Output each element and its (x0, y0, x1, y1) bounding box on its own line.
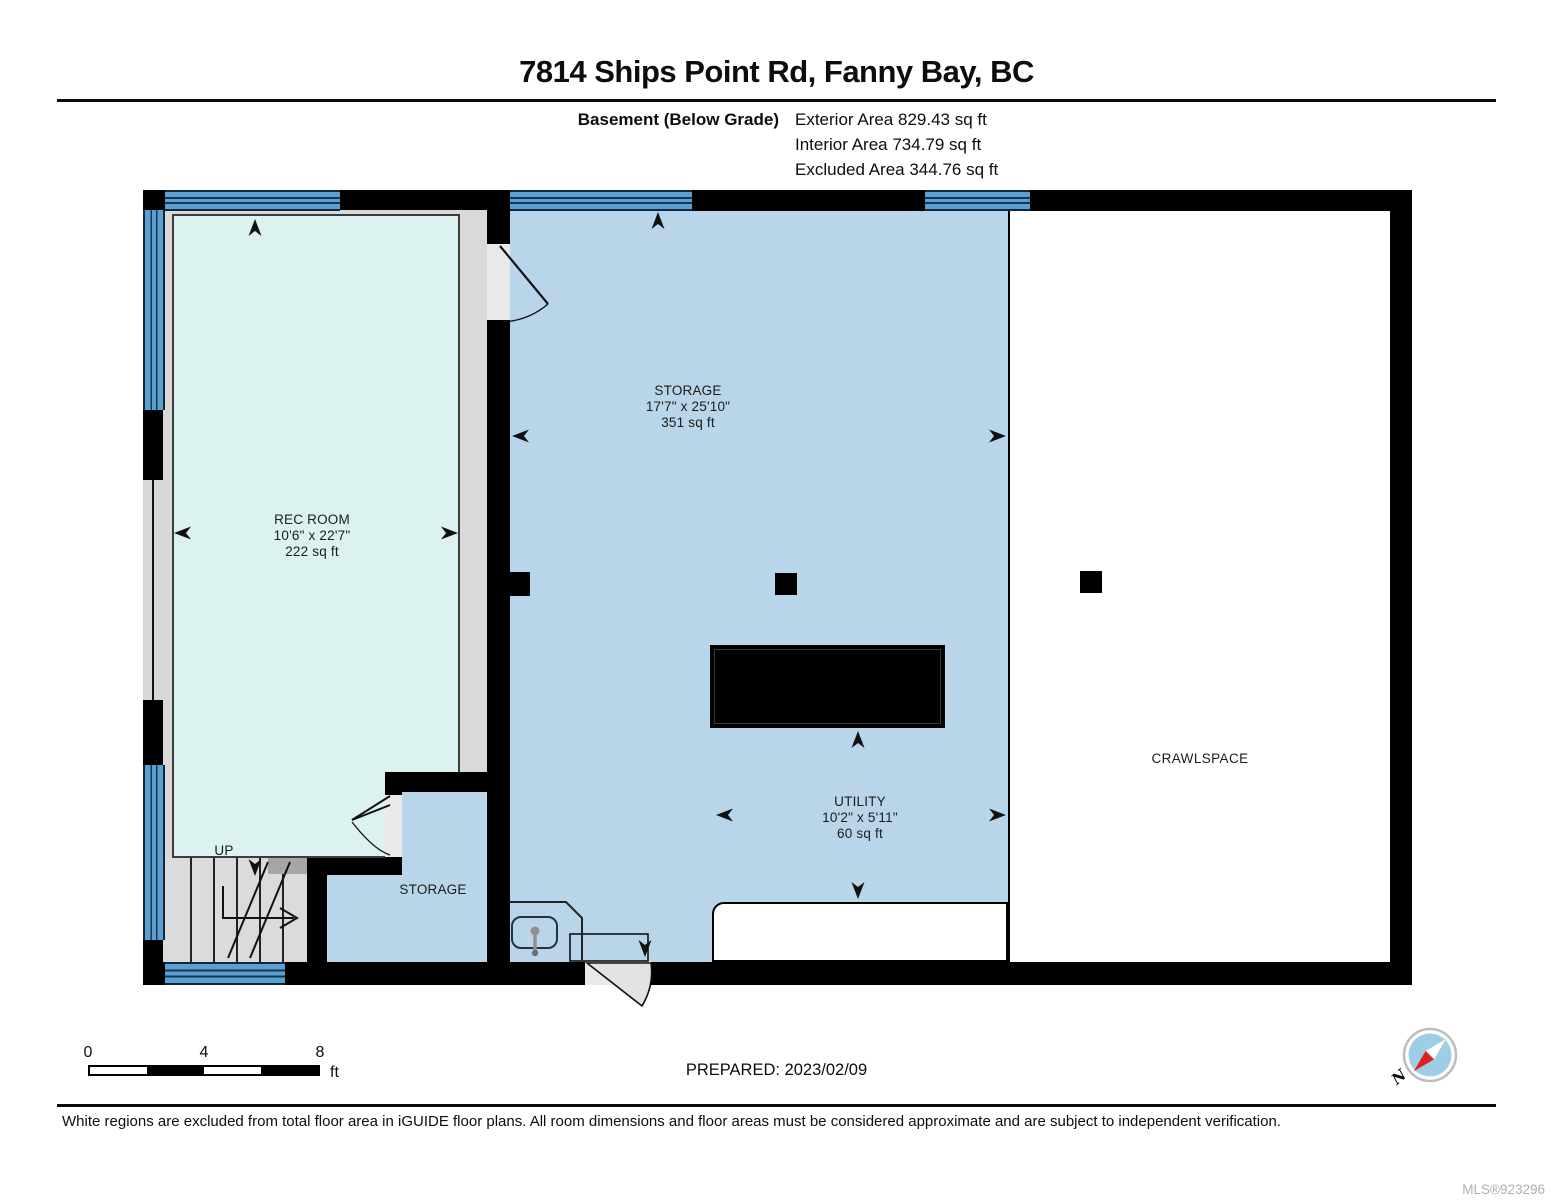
furnace-unit (710, 645, 945, 728)
floor-plan-page: 7814 Ships Point Rd, Fanny Bay, BC Basem… (0, 0, 1553, 1200)
room-area: 222 sq ft (232, 544, 392, 560)
room-dimensions: 10'6" x 22'7" (232, 528, 392, 544)
exterior-area: Exterior Area 829.43 sq ft (795, 110, 987, 130)
room-name: REC ROOM (232, 512, 392, 528)
window-top-1 (165, 190, 340, 211)
room-area: 60 sq ft (780, 826, 940, 842)
label-storage-closet: STORAGE (363, 882, 503, 898)
window-left-1 (143, 210, 165, 410)
wall-stub (510, 572, 530, 596)
room-name: UTILITY (780, 794, 940, 810)
stair-tread (236, 858, 238, 962)
wall-stair-closet (307, 875, 327, 962)
window-top-2 (500, 190, 692, 211)
page-title: 7814 Ships Point Rd, Fanny Bay, BC (0, 54, 1553, 90)
room-storage (510, 211, 1008, 962)
left-wall-line (152, 480, 154, 700)
room-area: 351 sq ft (608, 415, 768, 431)
footer-divider (57, 1104, 1496, 1107)
door-opening-closet (385, 795, 402, 857)
label-rec-room: REC ROOM 10'6" x 22'7" 222 sq ft (232, 512, 392, 561)
room-name: STORAGE (608, 383, 768, 399)
prepared-date: PREPARED: 2023/02/09 (0, 1061, 1553, 1080)
excluded-area: Excluded Area 344.76 sq ft (795, 160, 998, 180)
interior-area: Interior Area 734.79 sq ft (795, 135, 981, 155)
stair-tread (259, 858, 261, 962)
left-wall-below-grade (143, 480, 165, 700)
room-crawlspace (1008, 211, 1390, 962)
stair-tread (213, 858, 215, 962)
floor-label: Basement (Below Grade) (400, 110, 779, 130)
excluded-region-box (712, 902, 1008, 962)
header-divider (57, 99, 1496, 102)
stair-tread (190, 858, 192, 962)
window-bottom-1 (165, 962, 285, 985)
label-utility: UTILITY 10'2" x 5'11" 60 sq ft (780, 794, 940, 843)
stair-handrail (268, 858, 307, 874)
scale-tick-0: 0 (76, 1044, 100, 1062)
room-dimensions: 10'2" x 5'11" (780, 810, 940, 826)
label-crawlspace: CRAWLSPACE (1120, 751, 1280, 767)
wall-closet-top (390, 772, 510, 792)
label-stairs-up: UP (204, 843, 244, 859)
support-post-1 (775, 573, 797, 595)
disclaimer-text: White regions are excluded from total fl… (62, 1113, 1492, 1130)
mls-number: MLS®923296 (1345, 1182, 1545, 1197)
scale-tick-8: 8 (308, 1044, 332, 1062)
scale-tick-4: 4 (192, 1044, 216, 1062)
window-top-3 (925, 190, 1030, 211)
support-post-2 (1080, 571, 1102, 593)
wall-stair-landing (307, 858, 402, 875)
label-storage: STORAGE 17'7" x 25'10" 351 sq ft (608, 383, 768, 432)
door-opening-rec-storage (487, 244, 510, 320)
window-left-2 (143, 765, 165, 940)
room-dimensions: 17'7" x 25'10" (608, 399, 768, 415)
